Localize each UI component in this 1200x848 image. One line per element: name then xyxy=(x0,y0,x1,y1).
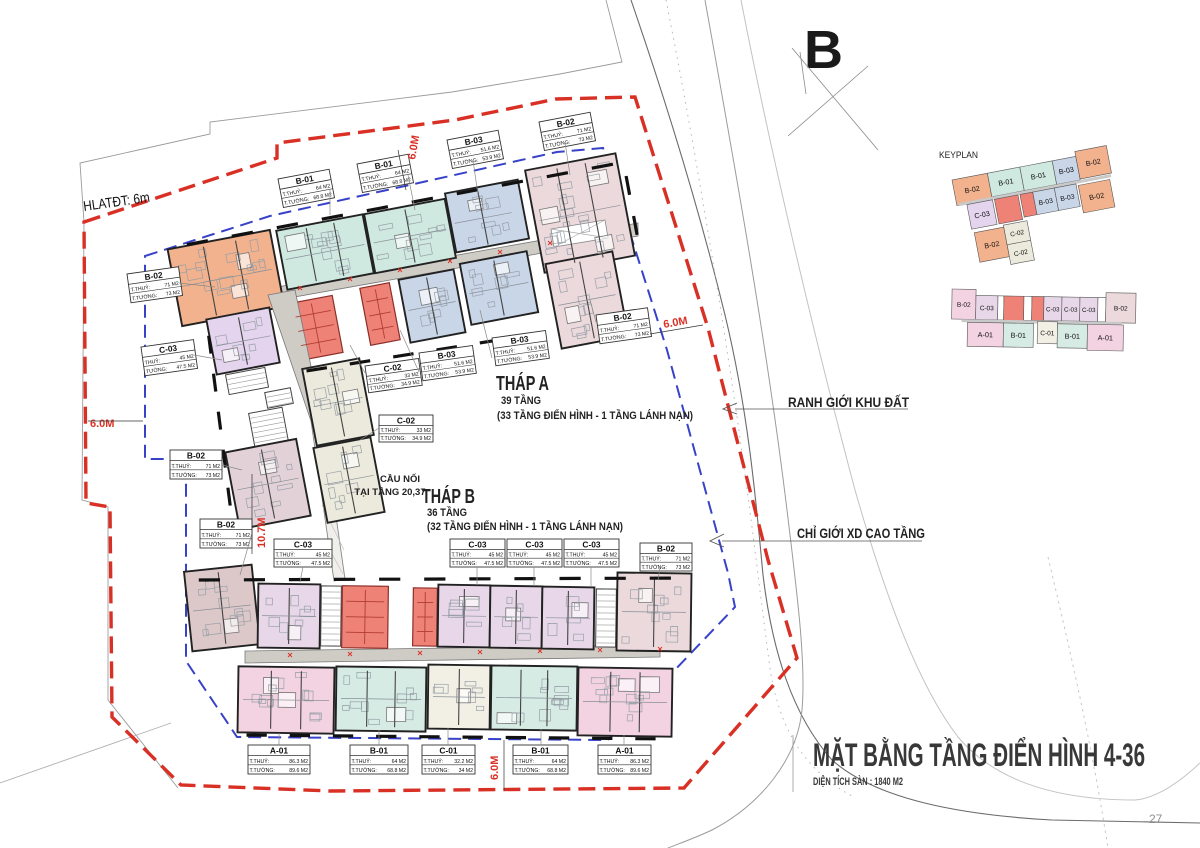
svg-text:T.THUỶ:: T.THUỶ: xyxy=(352,758,372,765)
svg-text:64 M2: 64 M2 xyxy=(392,759,407,765)
svg-text:CHỈ GIỚI XD CAO TẦNG: CHỈ GIỚI XD CAO TẦNG xyxy=(797,526,925,541)
svg-text:RANH GIỚI KHU ĐẤT: RANH GIỚI KHU ĐẤT xyxy=(788,395,910,410)
svg-text:71 M2: 71 M2 xyxy=(206,464,221,470)
svg-text:C-03: C-03 xyxy=(1046,306,1060,313)
svg-text:T.TƯỜNG:: T.TƯỜNG: xyxy=(566,560,591,567)
svg-text:68.8 M2: 68.8 M2 xyxy=(387,768,406,774)
svg-text:T.TƯỜNG:: T.TƯỜNG: xyxy=(600,767,625,774)
svg-text:C-01: C-01 xyxy=(439,746,457,756)
svg-text:T.THUỶ:: T.THUỶ: xyxy=(381,427,401,434)
svg-text:B-01: B-01 xyxy=(370,746,388,756)
svg-text:T.TƯỜNG:: T.TƯỜNG: xyxy=(250,767,275,774)
svg-text:B-02: B-02 xyxy=(657,544,675,554)
svg-text:45 M2: 45 M2 xyxy=(316,552,331,558)
svg-text:T.THUỶ:: T.THUỶ: xyxy=(600,758,620,765)
svg-text:T.TƯỜNG:: T.TƯỜNG: xyxy=(642,564,667,571)
svg-text:T.TƯỜNG:: T.TƯỜNG: xyxy=(452,560,477,567)
svg-text:MẶT BẰNG TẦNG ĐIỂN HÌNH 4-36: MẶT BẰNG TẦNG ĐIỂN HÌNH 4-36 xyxy=(813,737,1145,773)
svg-text:DIỆN TÍCH SÀN : 1840 M2: DIỆN TÍCH SÀN : 1840 M2 xyxy=(813,775,903,788)
svg-text:C-03: C-03 xyxy=(525,540,543,550)
svg-text:T.THUỶ:: T.THUỶ: xyxy=(509,551,529,558)
svg-text:THÁP A: THÁP A xyxy=(496,372,549,395)
svg-text:A-01: A-01 xyxy=(978,330,993,339)
svg-text:71 M2: 71 M2 xyxy=(676,556,691,562)
svg-text:6.0M: 6.0M xyxy=(489,756,501,780)
svg-text:T.THUỶ:: T.THUỶ: xyxy=(452,551,472,558)
svg-text:T.THUỶ:: T.THUỶ: xyxy=(566,551,586,558)
svg-text:B-02: B-02 xyxy=(187,451,205,461)
svg-text:T.THUỶ:: T.THUỶ: xyxy=(642,555,662,562)
svg-text:T.TƯỜNG:: T.TƯỜNG: xyxy=(276,560,301,567)
svg-text:89.6 M2: 89.6 M2 xyxy=(630,768,649,774)
svg-text:B: B xyxy=(804,20,843,80)
svg-text:36 TẦNG: 36 TẦNG xyxy=(427,506,467,519)
svg-text:39 TẦNG: 39 TẦNG xyxy=(501,394,541,407)
svg-text:71 M2: 71 M2 xyxy=(236,533,251,539)
svg-text:B-02: B-02 xyxy=(957,302,971,309)
svg-text:T.THUỶ:: T.THUỶ: xyxy=(276,551,296,558)
svg-text:B-02: B-02 xyxy=(1114,305,1128,312)
svg-text:T.THUỶ:: T.THUỶ: xyxy=(172,463,192,470)
svg-text:B-02: B-02 xyxy=(217,520,235,530)
svg-text:T.THUỶ:: T.THUỶ: xyxy=(250,758,270,765)
svg-text:C-03: C-03 xyxy=(468,540,486,550)
svg-text:73 M2: 73 M2 xyxy=(676,565,691,571)
svg-text:73 M2: 73 M2 xyxy=(206,473,221,479)
svg-text:CẦU NỐI: CẦU NỐI xyxy=(380,473,420,485)
svg-text:89.6 M2: 89.6 M2 xyxy=(289,768,308,774)
svg-text:T.TƯỜNG:: T.TƯỜNG: xyxy=(509,560,534,567)
svg-text:T.TƯỜNG:: T.TƯỜNG: xyxy=(381,435,406,442)
svg-text:45 M2: 45 M2 xyxy=(546,552,561,558)
svg-text:68.8 M2: 68.8 M2 xyxy=(547,768,566,774)
svg-text:T.TƯỜNG:: T.TƯỜNG: xyxy=(424,767,449,774)
svg-text:T.TƯỜNG:: T.TƯỜNG: xyxy=(172,472,197,479)
svg-text:C-01: C-01 xyxy=(1040,330,1055,337)
svg-text:47.5 M2: 47.5 M2 xyxy=(541,561,560,567)
svg-text:64 M2: 64 M2 xyxy=(552,759,567,765)
svg-text:A-01: A-01 xyxy=(270,746,288,756)
svg-text:C-03: C-03 xyxy=(1082,307,1096,314)
svg-text:KEYPLAN: KEYPLAN xyxy=(939,150,978,161)
svg-text:6.0M: 6.0M xyxy=(90,418,114,430)
svg-text:34 M2: 34 M2 xyxy=(459,768,474,774)
svg-text:B-01: B-01 xyxy=(1011,331,1026,340)
svg-text:A-01: A-01 xyxy=(1098,333,1113,342)
svg-text:C-03: C-03 xyxy=(980,305,995,312)
svg-text:T.THUỶ:: T.THUỶ: xyxy=(515,758,535,765)
svg-text:47.5 M2: 47.5 M2 xyxy=(598,561,617,567)
svg-text:A-01: A-01 xyxy=(615,746,633,756)
svg-text:32.2 M2: 32.2 M2 xyxy=(454,759,473,765)
svg-text:34.9 M2: 34.9 M2 xyxy=(412,436,431,442)
svg-text:27: 27 xyxy=(1149,812,1163,826)
svg-text:T.TƯỜNG:: T.TƯỜNG: xyxy=(202,541,227,548)
svg-text:86.3 M2: 86.3 M2 xyxy=(630,759,649,765)
svg-text:T.THUỶ:: T.THUỶ: xyxy=(424,758,444,765)
svg-text:C-02: C-02 xyxy=(397,416,415,426)
svg-text:C-03: C-03 xyxy=(582,540,600,550)
svg-text:T.THUỶ:: T.THUỶ: xyxy=(202,532,222,539)
svg-text:B-01: B-01 xyxy=(531,746,549,756)
svg-text:B-01: B-01 xyxy=(1065,332,1080,341)
svg-text:T.TƯỜNG:: T.TƯỜNG: xyxy=(515,767,540,774)
svg-text:C-03: C-03 xyxy=(294,540,312,550)
svg-text:C-03: C-03 xyxy=(1064,307,1078,314)
svg-text:33 M2: 33 M2 xyxy=(417,428,432,434)
svg-text:86.3 M2: 86.3 M2 xyxy=(289,759,308,765)
svg-text:47.5 M2: 47.5 M2 xyxy=(311,561,330,567)
svg-text:(33 TẦNG ĐIỂN HÌNH - 1 TẦNG LÁ: (33 TẦNG ĐIỂN HÌNH - 1 TẦNG LÁNH NẠN) xyxy=(497,409,693,422)
svg-text:TẠI TẦNG 20,37: TẠI TẦNG 20,37 xyxy=(354,487,425,498)
svg-text:45 M2: 45 M2 xyxy=(603,552,618,558)
svg-text:T.TƯỜNG:: T.TƯỜNG: xyxy=(352,767,377,774)
svg-text:45 M2: 45 M2 xyxy=(489,552,504,558)
svg-text:(32 TẦNG ĐIỂN HÌNH - 1 TẦNG LÁ: (32 TẦNG ĐIỂN HÌNH - 1 TẦNG LÁNH NẠN) xyxy=(427,520,623,533)
svg-text:THÁP B: THÁP B xyxy=(422,485,475,508)
svg-text:10.7M: 10.7M xyxy=(256,517,268,548)
svg-text:47.5 M2: 47.5 M2 xyxy=(484,561,503,567)
